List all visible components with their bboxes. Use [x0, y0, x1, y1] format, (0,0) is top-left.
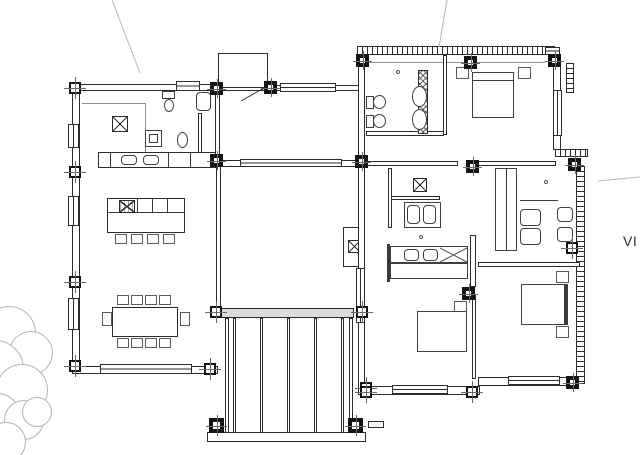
- window-bottom-left: [100, 364, 192, 374]
- column-rb-top-left: [356, 54, 369, 67]
- stool-4: [163, 234, 175, 244]
- deck-slat-5: [341, 318, 344, 436]
- island-divider-1: [137, 198, 138, 213]
- corridor-wall-2: [478, 161, 556, 166]
- dining-chair-b2: [131, 338, 143, 348]
- basin-2: [423, 205, 436, 224]
- office-bottom-wall: [478, 262, 580, 267]
- column-rb-step: [568, 158, 581, 171]
- divider-wall-2: [472, 295, 476, 379]
- washbasin: [177, 132, 188, 148]
- column-rb-top-mid: [464, 56, 477, 69]
- rb-right-hatch-wall: [576, 166, 585, 384]
- stool-1: [115, 234, 127, 244]
- column-lw-2: [69, 166, 81, 178]
- window-living: [240, 159, 342, 167]
- diagonal-line-3: [598, 177, 640, 181]
- deck-slat-1: [233, 318, 236, 436]
- plan-label: VI: [623, 233, 637, 249]
- bath-divider-wall: [198, 113, 202, 153]
- basin-1: [407, 205, 420, 224]
- bed2-bottom: [390, 263, 468, 279]
- diagonal-line-1: [112, 0, 140, 73]
- dining-chair-left: [102, 312, 112, 326]
- bidet-bowl: [373, 114, 386, 128]
- entry-vestibule: [218, 53, 268, 88]
- office-chair-1: [520, 209, 541, 226]
- island-divider-3: [167, 198, 168, 213]
- column-corridor: [466, 160, 479, 173]
- bed3-headboard: [564, 285, 567, 324]
- toilet-cistern: [162, 91, 175, 99]
- door-knob-3: [544, 180, 548, 184]
- sink-2: [143, 155, 159, 165]
- bed2b: [417, 311, 467, 352]
- column-office-r: [566, 242, 578, 254]
- column-living-se: [356, 306, 368, 318]
- rb-step-hatch: [555, 149, 588, 157]
- window-rb-bottom-2: [508, 376, 560, 385]
- tree-circle-8: [22, 397, 52, 427]
- fridge: [196, 92, 211, 111]
- column-lw-3: [69, 276, 81, 288]
- rb-top-hatch-wall: [357, 46, 555, 55]
- kitchen-skylight-xbox: [112, 116, 128, 132]
- column-rb-left-mid: [355, 155, 368, 168]
- deck-slat-3: [287, 318, 290, 436]
- sink-1: [121, 155, 137, 165]
- deck-stub: [368, 421, 384, 428]
- door-knob-1: [396, 70, 400, 74]
- dining-chair-b1: [117, 338, 129, 348]
- stool-2: [131, 234, 143, 244]
- column-rb-bottom-right: [566, 376, 579, 389]
- office-chair-2: [520, 228, 541, 245]
- island-divider-2: [152, 198, 153, 213]
- deck-top-band: [218, 308, 354, 318]
- office-divider-line: [520, 200, 558, 201]
- nightstand-3b: [556, 326, 569, 338]
- bath2-top-wall: [390, 196, 440, 200]
- column-living-sw: [210, 306, 222, 318]
- hall-xbox: [413, 178, 427, 192]
- toilet2-bowl: [373, 95, 386, 109]
- pillow-2: [423, 249, 438, 261]
- stool-3: [147, 234, 159, 244]
- deck-slat-4: [314, 318, 317, 436]
- dining-chair-b3: [145, 338, 157, 348]
- column-dining-se: [204, 363, 216, 375]
- column-deck-bl: [209, 418, 224, 433]
- leader-lines-layer: [0, 0, 640, 455]
- column-lw-1: [69, 82, 81, 94]
- toilet-bowl: [164, 99, 174, 112]
- window-left-3: [68, 298, 79, 330]
- window-rb-bottom-1: [392, 385, 448, 394]
- column-lw-4: [69, 360, 81, 372]
- dining-chair-b4: [159, 338, 171, 348]
- column-divider: [462, 287, 475, 300]
- bath1-right-wall: [443, 55, 447, 135]
- door-knob-2: [419, 235, 423, 239]
- living-left-wall: [216, 162, 221, 313]
- counter-divider-2: [168, 153, 169, 167]
- column-rb-top-right: [548, 54, 561, 67]
- office-seat-2: [557, 227, 573, 242]
- bath2-left-wall: [388, 168, 392, 228]
- floor-plan-canvas: VI: [0, 0, 640, 455]
- bed1: [472, 72, 514, 118]
- deck-slat-2: [260, 318, 263, 436]
- dining-chair-t4: [159, 295, 171, 305]
- wardrobe2-line: [506, 168, 507, 251]
- rb-top-inner-line: [365, 62, 545, 63]
- diagonal-line-2: [439, 0, 447, 47]
- rb-corner-hatch: [566, 63, 574, 93]
- nightstand-1b: [518, 67, 531, 79]
- column-vestibule: [264, 81, 277, 94]
- column-deck-br: [348, 418, 363, 433]
- nightstand-3a: [556, 271, 569, 283]
- dining-chair-t2: [131, 295, 143, 305]
- window-rb-right: [553, 90, 562, 136]
- rb-left-wall: [358, 55, 365, 395]
- dining-table: [112, 307, 178, 337]
- window-left-2: [68, 196, 79, 226]
- column-counter-end: [210, 154, 223, 167]
- dining-chair-t3: [145, 295, 157, 305]
- window-entry: [280, 83, 336, 92]
- heater-inner: [149, 134, 158, 143]
- bed3: [521, 284, 568, 325]
- bath1-bottom-wall: [366, 131, 444, 136]
- deck-bottom-band: [207, 432, 366, 442]
- window-top-1: [176, 81, 200, 91]
- bed1-headline: [472, 80, 514, 81]
- overhead-cabinet-line-h: [82, 103, 146, 104]
- column-lb-top-right: [210, 82, 223, 95]
- window-left-1: [68, 124, 79, 148]
- shower-oval-1: [412, 86, 427, 107]
- dining-chair-right: [180, 312, 190, 326]
- office-seat-1: [557, 207, 573, 222]
- column-rb-bottom-left: [360, 386, 372, 398]
- corridor-wall-1: [366, 161, 458, 166]
- kitchen-right-wall: [215, 91, 220, 155]
- deck-left-frame: [225, 318, 229, 436]
- counter-divider-3: [190, 153, 191, 167]
- divider-wall-1: [470, 235, 476, 287]
- column-rb-bottom-mid: [466, 386, 478, 398]
- dining-chair-t1: [117, 295, 129, 305]
- counter-divider-1: [110, 153, 111, 167]
- pillow-1: [404, 249, 419, 261]
- shower-oval-2: [412, 109, 427, 130]
- island-hob: [119, 200, 135, 213]
